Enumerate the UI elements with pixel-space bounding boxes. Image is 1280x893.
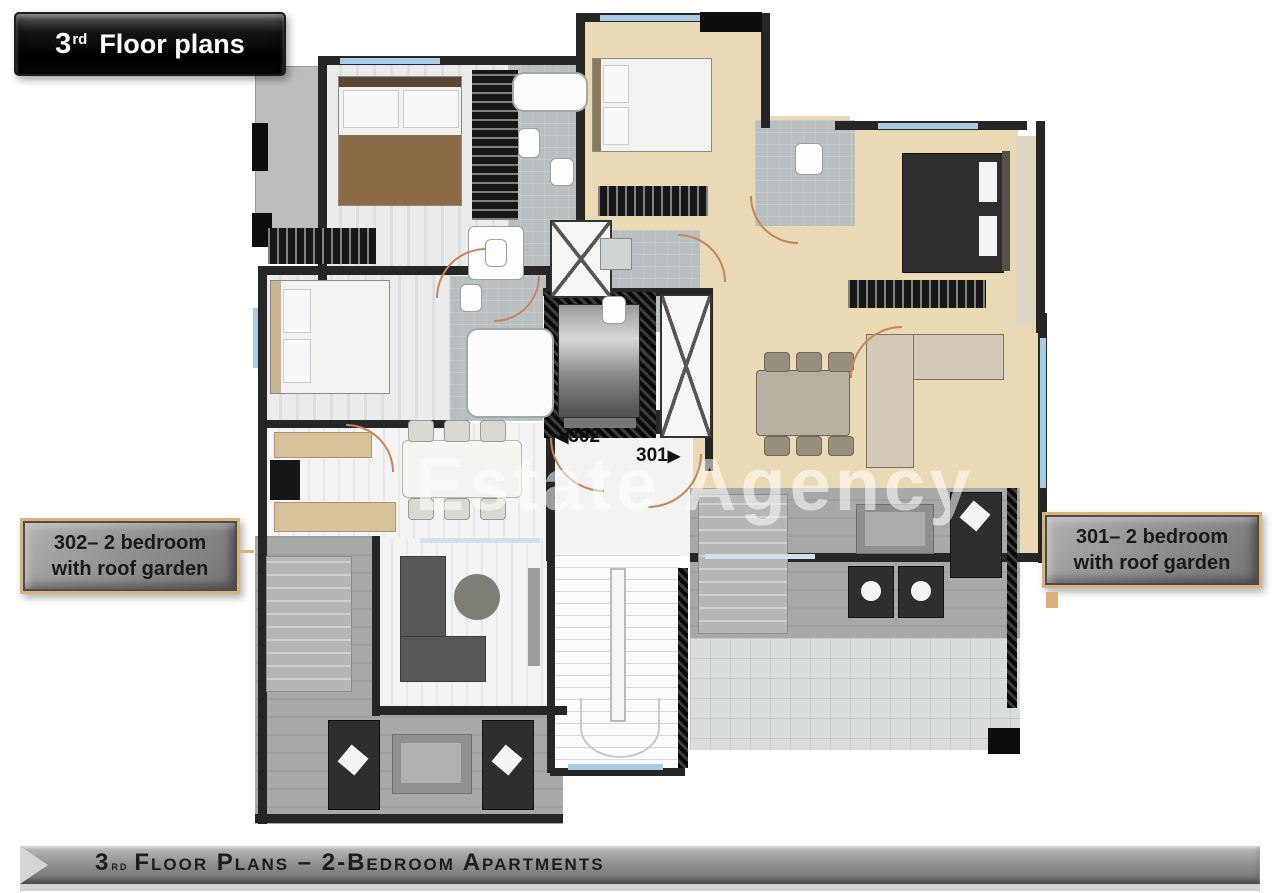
outdoor-table xyxy=(392,734,472,794)
wall xyxy=(258,266,267,824)
bed xyxy=(592,58,712,152)
headboard xyxy=(593,59,601,151)
wardrobe xyxy=(268,228,376,264)
window xyxy=(420,538,540,543)
bathtub xyxy=(512,72,588,112)
sofa xyxy=(400,636,486,682)
bed xyxy=(338,76,462,206)
chair xyxy=(764,436,790,456)
cushion xyxy=(861,581,881,601)
footer-ordinal: rd xyxy=(111,858,128,873)
window xyxy=(600,15,700,21)
chair xyxy=(408,498,434,520)
wall-hatched xyxy=(678,568,688,768)
pillow xyxy=(979,162,997,202)
pillow xyxy=(343,90,399,128)
table-top xyxy=(865,512,925,546)
page: 3rdFloor plans xyxy=(0,0,1280,893)
pillow xyxy=(283,339,311,383)
label-301-leader xyxy=(1046,592,1058,608)
pillow xyxy=(603,107,629,145)
shower xyxy=(600,238,632,270)
title-banner: 3rdFloor plans xyxy=(14,12,286,76)
roof-garden-301-tiles xyxy=(690,638,1020,750)
outdoor-table xyxy=(856,504,934,554)
outdoor-armchair xyxy=(848,566,894,618)
outdoor-sofa xyxy=(950,492,1002,578)
headboard xyxy=(339,77,461,87)
footer-number: 3 xyxy=(95,849,110,877)
unit-301-number: 301 xyxy=(636,445,668,467)
pouf xyxy=(454,574,500,620)
wall-block xyxy=(252,123,268,171)
chair xyxy=(444,498,470,520)
chair xyxy=(828,436,854,456)
bed xyxy=(270,280,390,394)
outdoor-armchair xyxy=(898,566,944,618)
stairs xyxy=(698,494,788,634)
chair xyxy=(480,498,506,520)
cushion xyxy=(960,501,991,532)
toilet xyxy=(518,128,540,158)
pillow xyxy=(979,216,997,256)
wall-block xyxy=(700,12,762,32)
stove xyxy=(270,460,300,500)
table-top xyxy=(401,743,461,783)
chair xyxy=(408,420,434,442)
cushion xyxy=(492,745,523,776)
sink xyxy=(602,296,626,324)
outdoor-armchair xyxy=(482,720,534,810)
footer-strip xyxy=(20,884,1260,891)
window xyxy=(705,554,815,559)
wall-block xyxy=(988,728,1020,754)
wall xyxy=(375,706,567,715)
title-label: Floor plans xyxy=(99,29,245,60)
wardrobe xyxy=(848,280,986,308)
pillow xyxy=(403,90,459,128)
stair-shaft xyxy=(660,294,712,438)
pillow xyxy=(603,65,629,103)
cushion xyxy=(911,581,931,601)
wall xyxy=(372,536,380,716)
toilet xyxy=(485,239,507,267)
dining-table xyxy=(402,440,522,498)
floor-plan: ◀302 301▶ xyxy=(250,8,1050,823)
kitchen-counter xyxy=(274,502,396,532)
window xyxy=(340,58,440,64)
elevator-cab xyxy=(558,304,640,418)
chair xyxy=(480,420,506,442)
title-ordinal: rd xyxy=(72,31,87,48)
door-arrow-left-icon: ◀ xyxy=(556,427,568,447)
stair-turn xyxy=(580,698,660,758)
unit-302-number: 302 xyxy=(568,426,600,448)
toilet xyxy=(795,143,823,175)
blanket xyxy=(339,135,461,205)
footer-text: 3rdFloor Plans – 2-Bedroom Apartments xyxy=(20,849,605,881)
wall xyxy=(547,561,555,773)
headboard xyxy=(1002,151,1010,271)
unit-301-door-tag: 301▶ xyxy=(636,445,680,467)
chair xyxy=(444,420,470,442)
cushion xyxy=(338,745,369,776)
unit-302-door-tag: ◀302 xyxy=(556,426,600,448)
dining-table xyxy=(756,370,850,436)
bathtub xyxy=(466,328,554,418)
bed xyxy=(902,153,1004,273)
label-302: 302– 2 bedroom with roof garden xyxy=(20,518,240,594)
label-301: 301– 2 bedroom with roof garden xyxy=(1042,512,1262,588)
wall-hatched xyxy=(1007,488,1017,708)
chair xyxy=(764,352,790,372)
label-302-leader xyxy=(240,550,254,553)
tv-unit xyxy=(528,568,540,666)
outdoor-armchair xyxy=(328,720,380,810)
label-301-line2: with roof garden xyxy=(1074,550,1231,576)
sink xyxy=(550,158,574,186)
title-number: 3 xyxy=(55,28,71,61)
window xyxy=(878,123,978,129)
elevator-shaft xyxy=(544,292,656,438)
label-302-line2: with roof garden xyxy=(52,556,209,582)
chair xyxy=(796,436,822,456)
chair xyxy=(796,352,822,372)
wardrobe xyxy=(598,186,708,216)
pillow xyxy=(283,289,311,333)
stairs xyxy=(266,556,352,692)
wall xyxy=(761,13,770,128)
wall xyxy=(255,814,563,823)
window xyxy=(568,764,663,770)
window xyxy=(253,308,258,368)
label-302-line1: 302– 2 bedroom xyxy=(54,530,206,556)
headboard xyxy=(271,281,281,393)
footer-label: Floor Plans – 2-Bedroom Apartments xyxy=(134,849,604,877)
label-301-line1: 301– 2 bedroom xyxy=(1076,524,1228,550)
window xyxy=(1040,338,1046,488)
footer-banner: 3rdFloor Plans – 2-Bedroom Apartments xyxy=(20,846,1260,884)
wall xyxy=(1036,121,1045,333)
door-arrow-right-icon: ▶ xyxy=(668,446,680,466)
